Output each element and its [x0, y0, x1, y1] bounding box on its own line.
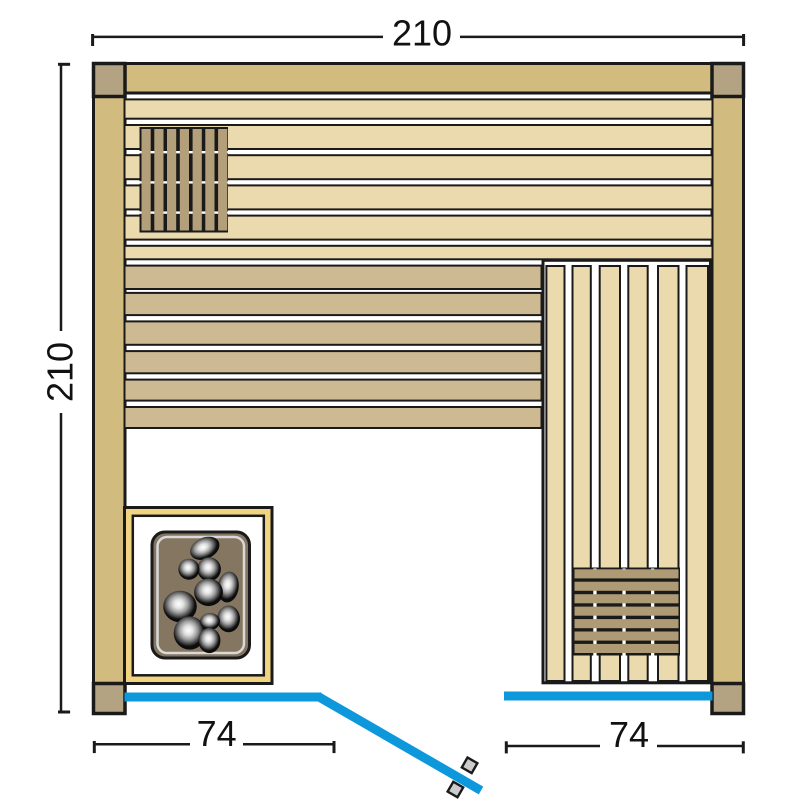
svg-text:74: 74	[197, 713, 237, 754]
svg-text:74: 74	[609, 714, 649, 755]
svg-text:210: 210	[40, 342, 81, 402]
svg-text:210: 210	[392, 13, 452, 54]
